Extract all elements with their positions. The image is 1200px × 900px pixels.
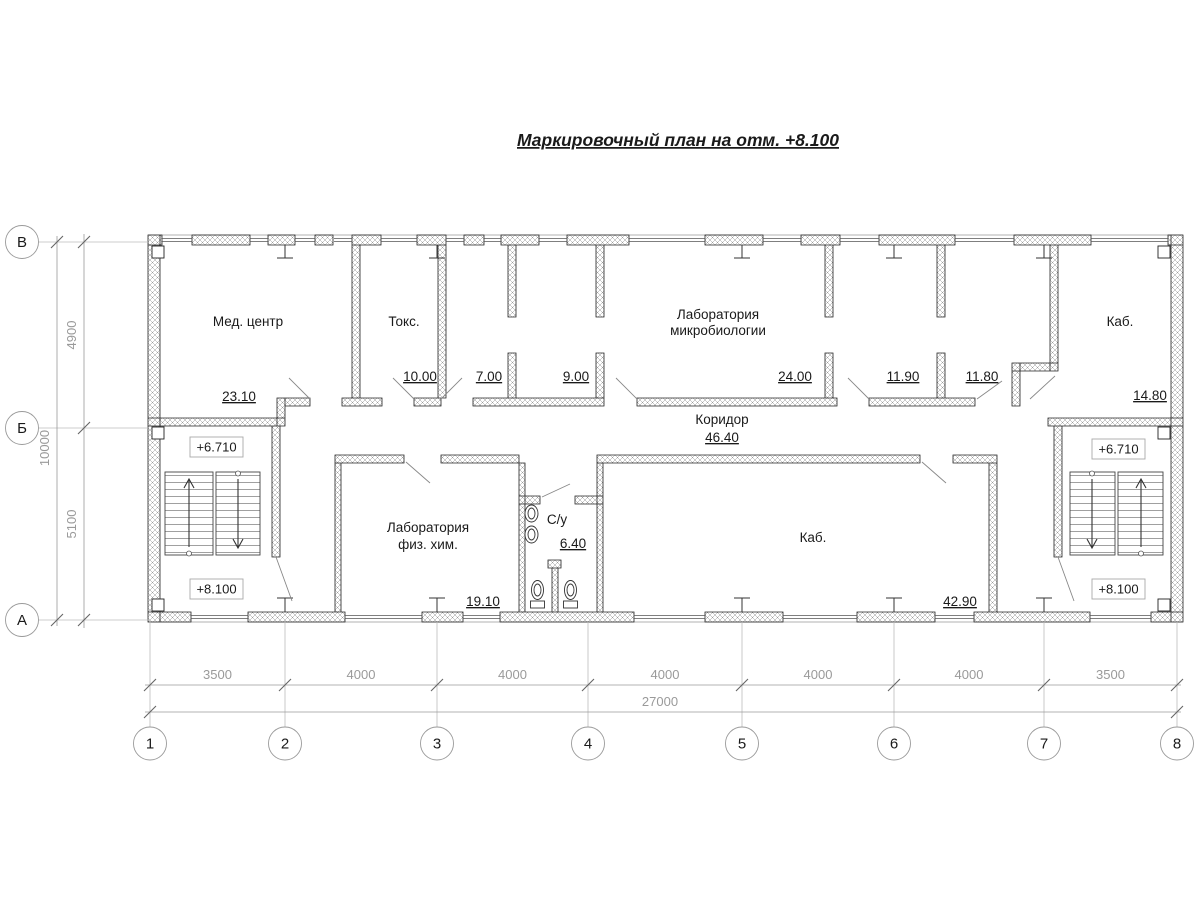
elevation-value: +6.710 (1098, 442, 1138, 457)
room-area-kab-bottom: 42.90 (943, 594, 977, 609)
room-area-11-90: 11.90 (887, 369, 920, 384)
door-leaves (276, 376, 1074, 601)
handrail-post (1090, 471, 1095, 476)
handrail-post (1139, 551, 1144, 556)
room-area-9: 9.00 (563, 369, 589, 384)
room-area-fiz-him: 19.10 (466, 594, 500, 609)
toilet-tank-icon (564, 601, 578, 608)
handrail-post (236, 471, 241, 476)
dim-label: 3500 (1096, 667, 1125, 682)
room-label-kab-top: Каб. (1107, 314, 1134, 329)
dim-label: 4000 (651, 667, 680, 682)
axis-bubble-7: 7 (1040, 736, 1048, 753)
axis-bubbles-vertical: В Б А (6, 226, 39, 637)
axis-bubble-6: 6 (890, 736, 898, 753)
axis-bubble-b: Б (17, 420, 27, 437)
room-area-11-80: 11.80 (966, 369, 999, 384)
axis-bubble-5: 5 (738, 736, 746, 753)
staircase-right (1070, 471, 1163, 556)
elevation-value: +8.100 (196, 582, 236, 597)
window-openings (162, 239, 1168, 619)
axis-bubble-3: 3 (433, 736, 441, 753)
column-marker (152, 427, 164, 439)
axis-bubble-a: А (17, 612, 27, 629)
staircase-left (165, 471, 260, 556)
dim-total-label: 27000 (642, 694, 678, 709)
room-label-fiz-him-line2: физ. хим. (398, 537, 458, 552)
dim-label: 4000 (804, 667, 833, 682)
sink-bowl-icon (528, 529, 535, 540)
outer-wall-face-lines (148, 235, 1183, 622)
room-area-corridor: 46.40 (705, 430, 739, 445)
dim-label: 4900 (64, 321, 79, 350)
room-label-med-center: Мед. центр (213, 314, 283, 329)
axis-bubble-v: В (17, 234, 27, 251)
room-label-micro-lab-line1: Лаборатория (677, 307, 759, 322)
column-marker (1158, 246, 1170, 258)
room-area-micro-lab: 24.00 (778, 369, 812, 384)
elevation-value: +6.710 (196, 440, 236, 455)
room-area-med-center: 23.10 (222, 389, 256, 404)
walls (148, 235, 1183, 622)
column-marker (1158, 427, 1170, 439)
column-squares (152, 246, 1170, 611)
toilet-bowl-icon (534, 584, 541, 596)
room-label-micro-lab-line2: микробиологии (670, 323, 766, 338)
dim-label: 4000 (955, 667, 984, 682)
room-area-su: 6.40 (560, 536, 586, 551)
floor-plan-canvas: Маркировочный план на отм. +8.100 (0, 0, 1200, 900)
room-area-kab-top: 14.80 (1133, 388, 1167, 403)
room-label-corridor: Коридор (695, 412, 748, 427)
column-marker (1158, 599, 1170, 611)
left-dimensions: 4900 5100 10000 (37, 321, 79, 539)
bottom-dimensions: 3500 4000 4000 4000 4000 4000 3500 27000 (203, 667, 1125, 709)
window-axis-marks (277, 245, 1052, 612)
axis-bubble-4: 4 (584, 736, 592, 753)
toilet-tank-icon (531, 601, 545, 608)
dim-label: 5100 (64, 510, 79, 539)
dim-label: 4000 (498, 667, 527, 682)
room-label-kab-bottom: Каб. (800, 530, 827, 545)
room-label-toks: Токс. (388, 314, 419, 329)
column-marker (152, 599, 164, 611)
axis-bubbles-horizontal: 1 2 3 4 5 6 7 8 (134, 727, 1194, 760)
dim-label: 4000 (347, 667, 376, 682)
axis-bubble-2: 2 (281, 736, 289, 753)
handrail-post (187, 551, 192, 556)
column-marker (152, 246, 164, 258)
sink-bowl-icon (528, 508, 535, 519)
page-title: Маркировочный план на отм. +8.100 (517, 130, 839, 150)
elevation-value: +8.100 (1098, 582, 1138, 597)
dim-total-label: 10000 (37, 430, 52, 466)
room-label-su: С/у (547, 512, 568, 527)
room-label-fiz-him-line1: Лаборатория (387, 520, 469, 535)
toilet-bowl-icon (567, 584, 574, 596)
room-area-toks: 10.00 (403, 369, 437, 384)
axis-bubble-8: 8 (1173, 736, 1181, 753)
axis-bubble-1: 1 (146, 736, 154, 753)
room-area-7: 7.00 (476, 369, 502, 384)
dim-label: 3500 (203, 667, 232, 682)
